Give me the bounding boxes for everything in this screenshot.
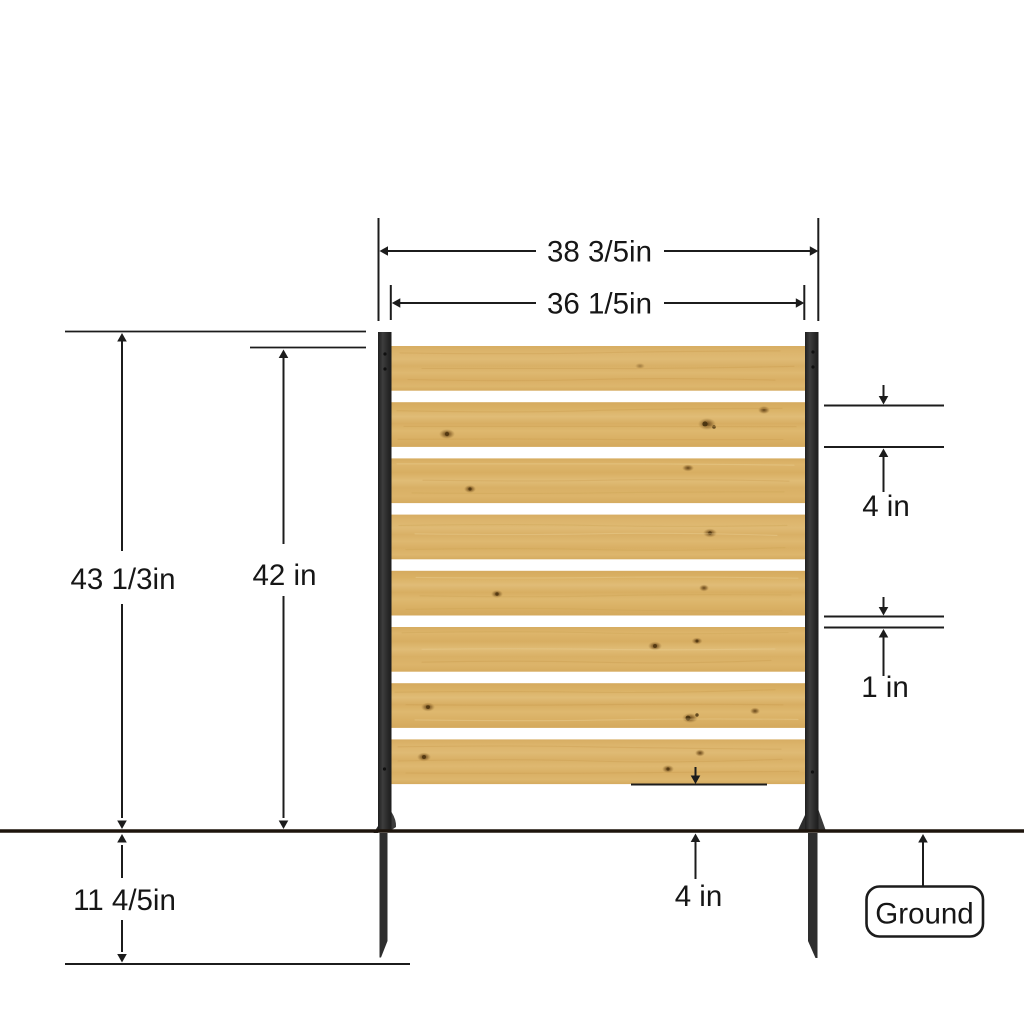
svg-text:36 1/5in: 36 1/5in	[547, 288, 652, 321]
svg-text:4 in: 4 in	[675, 880, 723, 913]
svg-text:11 4/5in: 11 4/5in	[73, 884, 176, 917]
svg-text:38 3/5in: 38 3/5in	[547, 236, 652, 269]
svg-text:Ground: Ground	[875, 898, 973, 931]
svg-text:1 in: 1 in	[861, 671, 909, 704]
svg-text:4 in: 4 in	[862, 490, 910, 523]
svg-text:43 1/3in: 43 1/3in	[71, 563, 176, 596]
svg-text:42 in: 42 in	[253, 559, 317, 592]
